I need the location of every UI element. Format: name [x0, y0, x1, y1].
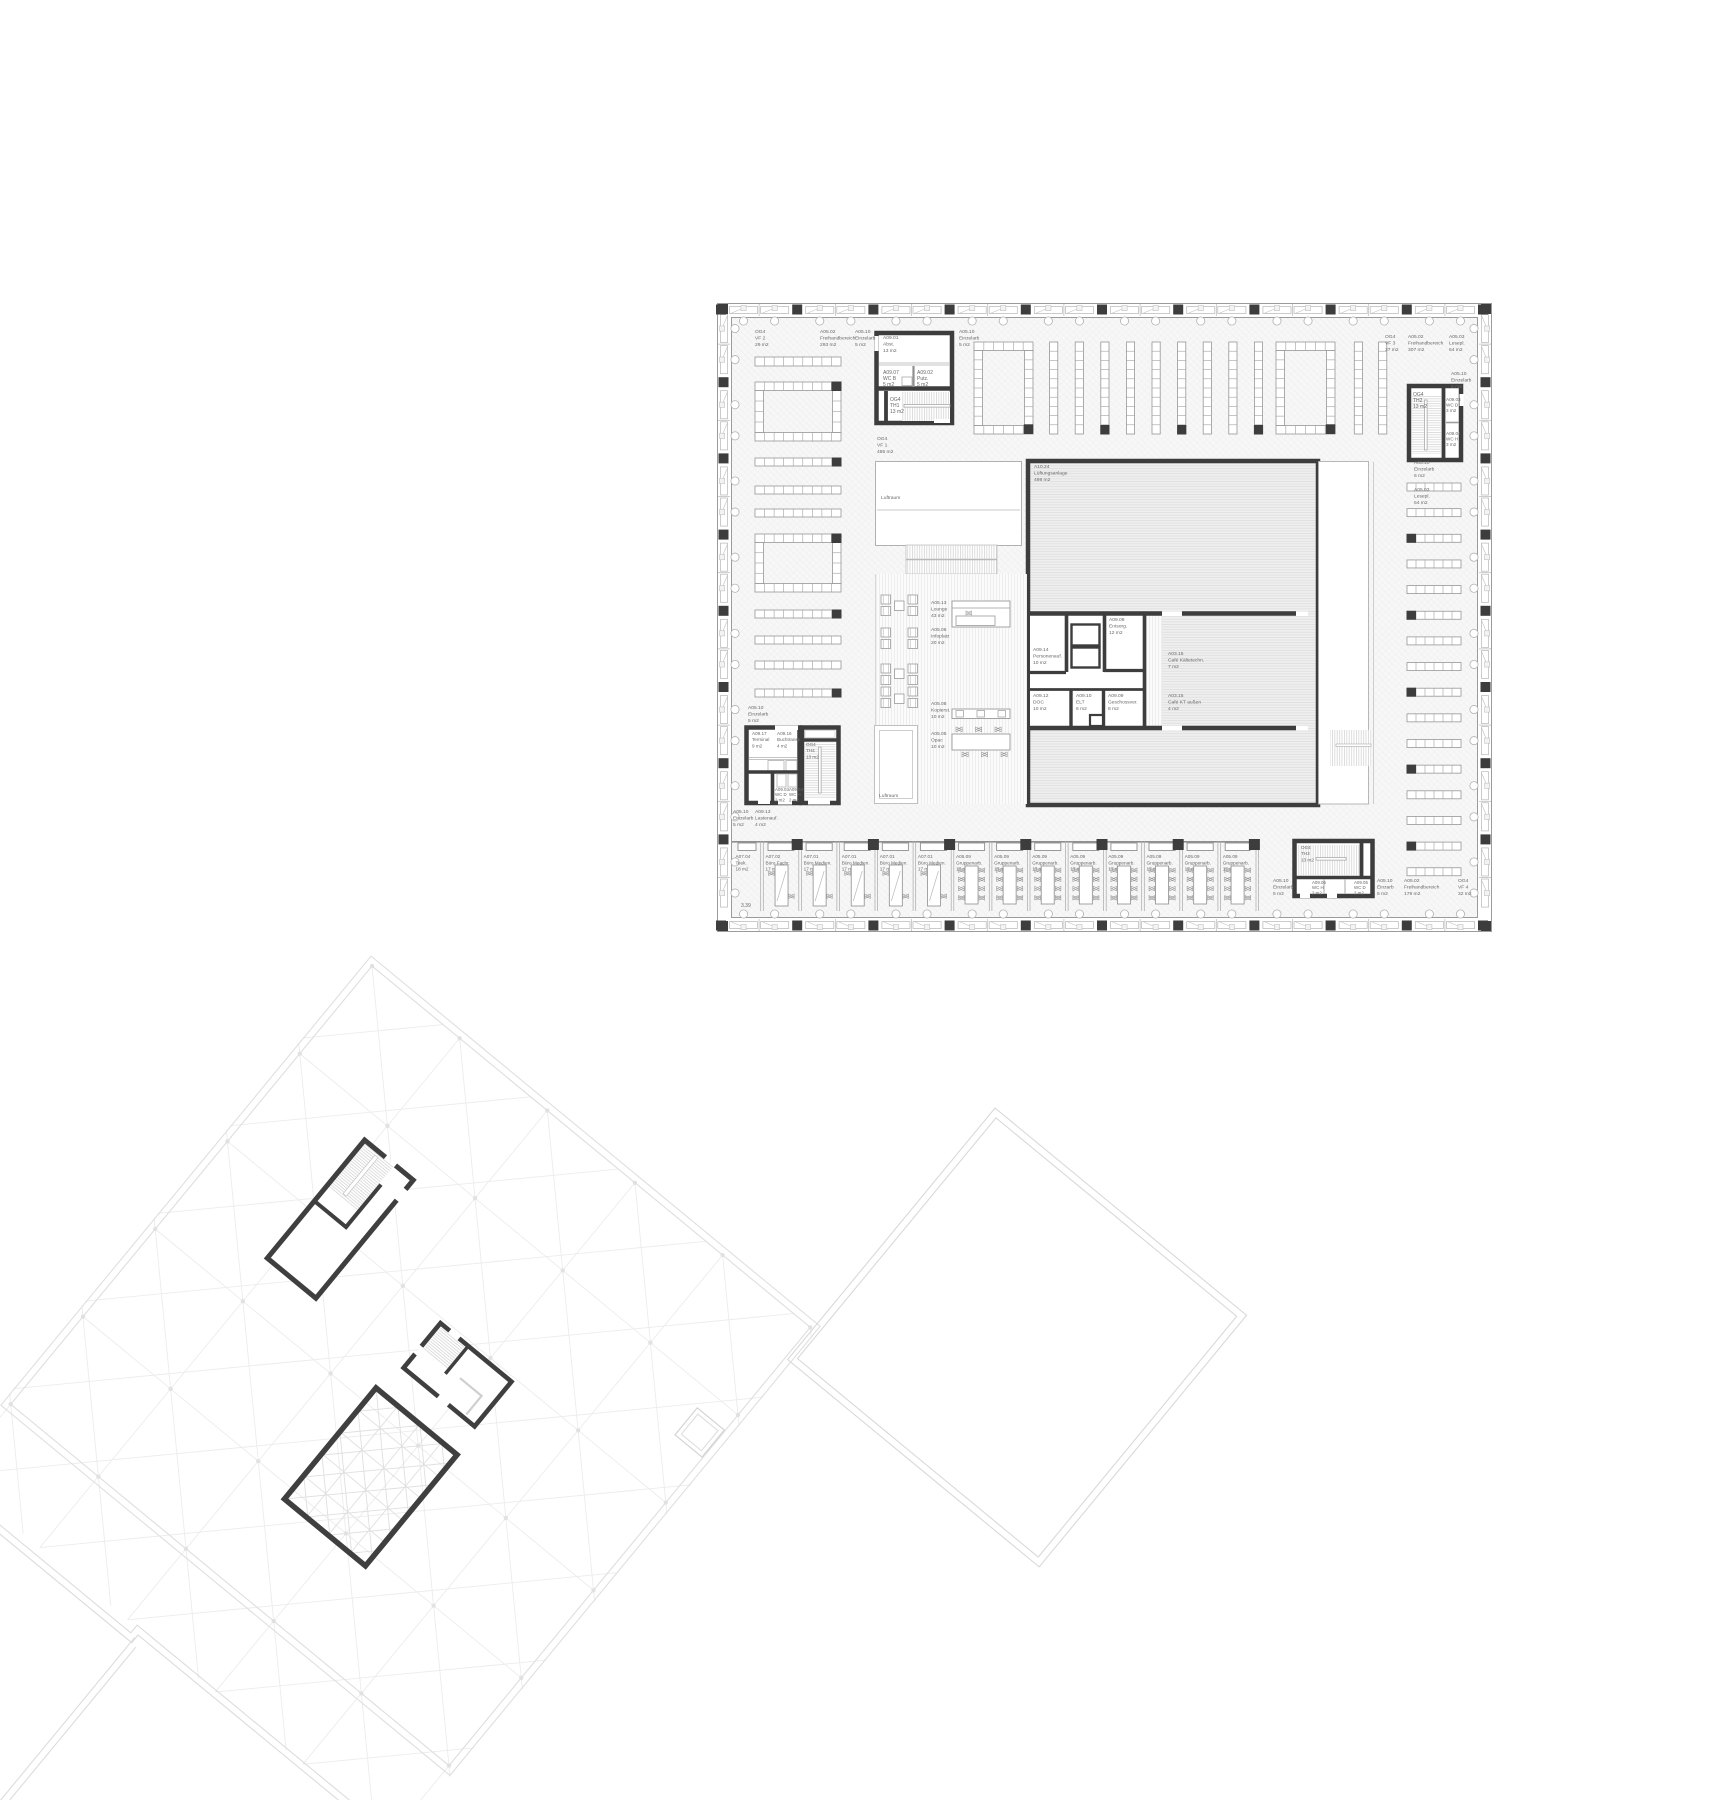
svg-text:A05.03Lesepl.64 m2: A05.03Lesepl.64 m2	[1449, 334, 1465, 353]
svg-text:A05.03Lesepl.54 m2: A05.03Lesepl.54 m2	[1414, 487, 1430, 506]
svg-text:Luftraum: Luftraum	[881, 495, 900, 501]
svg-text:3.39: 3.39	[741, 903, 751, 909]
svg-text:Luftraum: Luftraum	[879, 793, 898, 799]
